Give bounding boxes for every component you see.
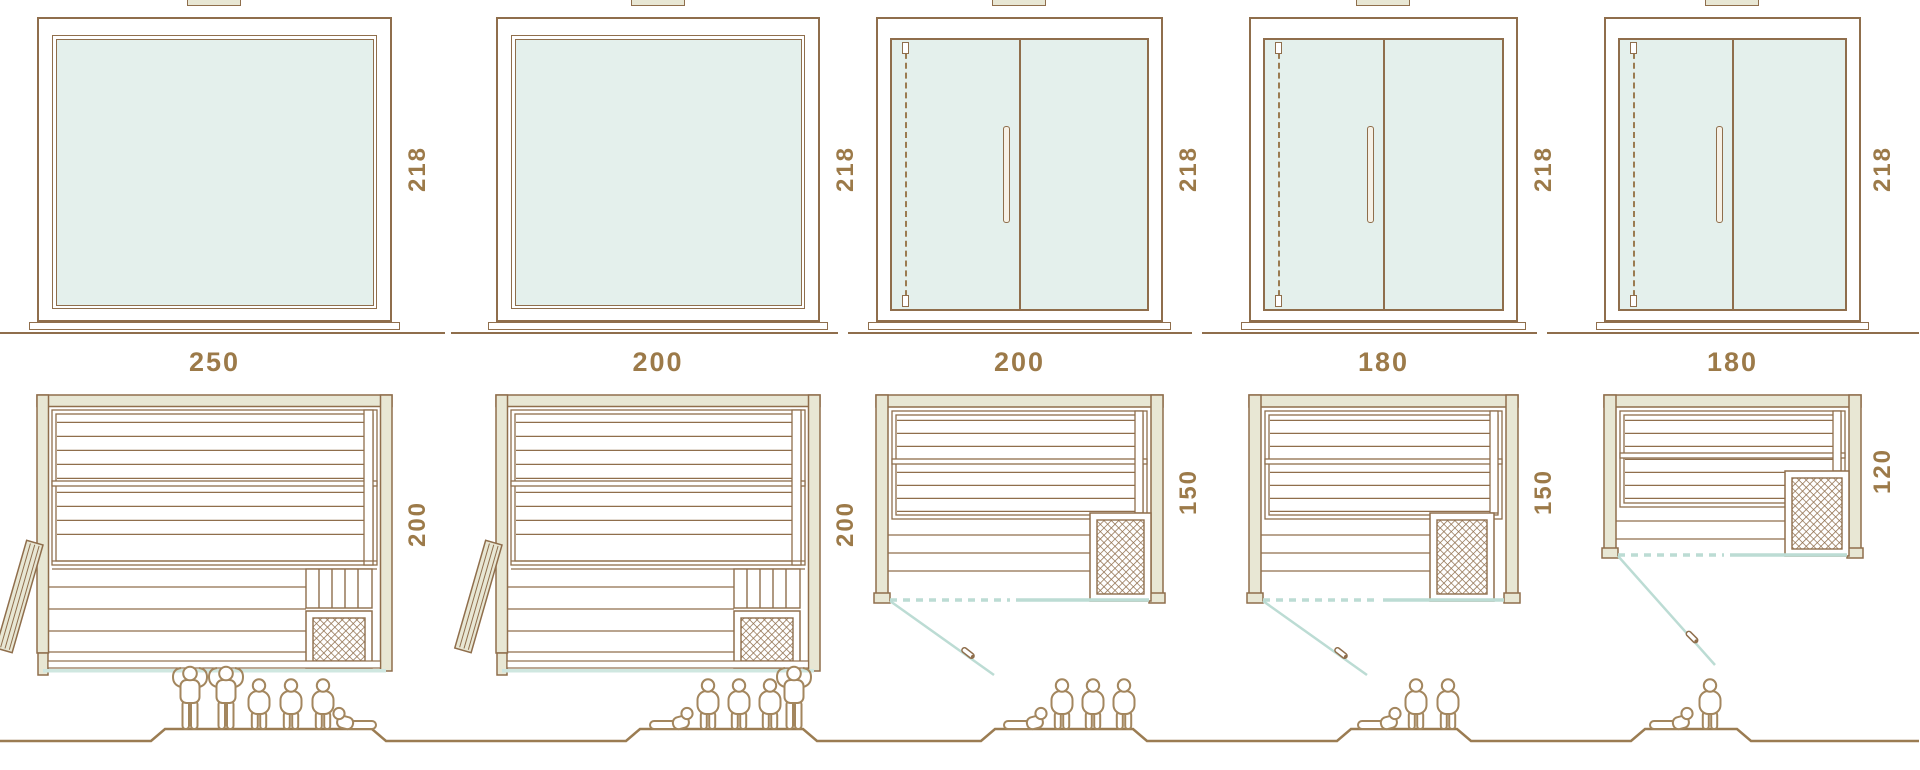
person-sitting-icon (313, 679, 334, 729)
height-dimension-label: 218 (1871, 129, 1895, 209)
width-dimension-label: 250 (37, 347, 392, 379)
sill (1241, 322, 1526, 330)
hinge-top-icon (1630, 42, 1637, 54)
person-lying-icon (1004, 708, 1047, 730)
capacity-figures-row (0, 640, 1920, 770)
glass-door-front (1263, 38, 1504, 311)
open-door (455, 540, 502, 652)
ground-line (0, 729, 1919, 741)
depth-dimension-label: 200 (406, 484, 430, 564)
person-standing-icon (173, 667, 207, 729)
person-standing-icon (777, 667, 811, 729)
sill (1596, 322, 1869, 330)
hinge-top-icon (902, 42, 909, 54)
glass-door-front (1618, 38, 1847, 311)
width-dimension-label: 180 (1604, 347, 1861, 379)
front-elevation (876, 17, 1163, 322)
roof-vent-tab (992, 0, 1046, 6)
person-sitting-icon (760, 679, 781, 729)
sauna-size-diagram: 218 250 200 (0, 0, 1920, 770)
person-sitting-icon (1406, 679, 1427, 729)
floor-plan (876, 395, 1163, 605)
baseline (451, 332, 838, 334)
door-edge-line (1732, 40, 1734, 309)
bench-step (734, 569, 800, 608)
height-dimension-label: 218 (1532, 129, 1556, 209)
heater (1785, 471, 1849, 556)
height-dimension-label: 218 (406, 129, 430, 209)
depth-dimension-label: 120 (1871, 431, 1895, 511)
hinge-top-icon (1275, 42, 1282, 54)
sill (29, 322, 400, 330)
width-dimension-label: 180 (1249, 347, 1518, 379)
person-lying-icon (333, 708, 376, 730)
roof-vent-tab (1356, 0, 1410, 6)
roof-vent-tab (1705, 0, 1759, 6)
height-dimension-label: 218 (1177, 129, 1201, 209)
capacity-group-2 (650, 667, 811, 731)
baseline (1202, 332, 1537, 334)
person-lying-icon (1650, 708, 1693, 730)
hinge-bottom-icon (1275, 295, 1282, 307)
glass-panel (515, 39, 802, 306)
person-sitting-icon (1052, 679, 1073, 729)
baseline (1547, 332, 1919, 334)
glass-door-front (890, 38, 1149, 311)
floor-plan (37, 395, 392, 675)
depth-dimension-label: 150 (1532, 452, 1556, 532)
door-handle[interactable] (1716, 126, 1723, 223)
hinge-bottom-icon (902, 295, 909, 307)
floor-plan (1249, 395, 1518, 605)
baseline (0, 332, 445, 334)
door-edge-line (1019, 40, 1021, 309)
sill (488, 322, 828, 330)
front-elevation (1249, 17, 1518, 322)
hinge-axis-dashed-line (1278, 43, 1280, 306)
front-elevation (496, 17, 820, 322)
glass-panel (56, 39, 374, 306)
door-handle[interactable] (1003, 126, 1010, 223)
heater (1090, 513, 1151, 601)
capacity-group-4 (1358, 679, 1459, 730)
person-lying-icon (650, 708, 693, 730)
width-dimension-label: 200 (496, 347, 820, 379)
hinge-axis-dashed-line (905, 43, 907, 306)
width-dimension-label: 200 (876, 347, 1163, 379)
front-elevation (37, 17, 392, 322)
capacity-group-1 (173, 667, 376, 731)
hinge-bottom-icon (1630, 295, 1637, 307)
person-sitting-icon (698, 679, 719, 729)
person-sitting-icon (729, 679, 750, 729)
hinge-axis-dashed-line (1633, 43, 1635, 306)
door-handle[interactable] (1367, 126, 1374, 223)
baseline (848, 332, 1192, 334)
person-standing-icon (209, 667, 243, 729)
person-lying-icon (1358, 708, 1401, 730)
sill (868, 322, 1171, 330)
person-sitting-icon (1114, 679, 1135, 729)
front-elevation (1604, 17, 1861, 322)
bench-step (306, 569, 372, 608)
glass-frame (511, 35, 805, 309)
person-sitting-icon (281, 679, 302, 729)
depth-dimension-label: 150 (1177, 452, 1201, 532)
person-sitting-icon (1700, 679, 1721, 729)
depth-dimension-label: 200 (834, 484, 858, 564)
capacity-group-3 (1004, 679, 1135, 730)
door-edge-line (1383, 40, 1385, 309)
person-sitting-icon (1083, 679, 1104, 729)
floor-plan (496, 395, 820, 675)
capacity-group-5 (1650, 679, 1721, 730)
roof-vent-tab (631, 0, 685, 6)
glass-frame (52, 35, 377, 309)
floor-plan (1604, 395, 1861, 560)
person-sitting-icon (1438, 679, 1459, 729)
heater (1430, 513, 1494, 601)
person-sitting-icon (249, 679, 270, 729)
roof-vent-tab (187, 0, 241, 6)
height-dimension-label: 218 (834, 129, 858, 209)
